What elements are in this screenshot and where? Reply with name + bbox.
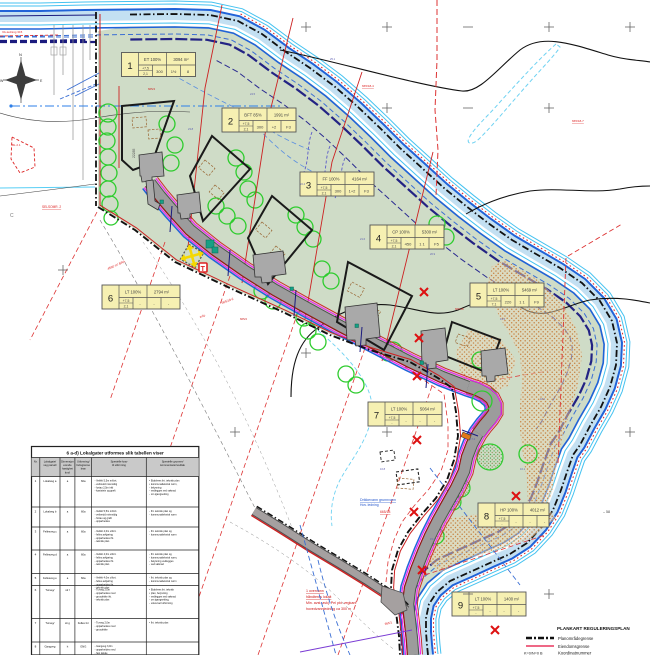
svg-text:4164 m²: 4164 m² xyxy=(352,177,368,182)
svg-text:23.8: 23.8 xyxy=(188,127,194,131)
svg-text:17.4: 17.4 xyxy=(470,437,476,441)
svg-text:erende: erende xyxy=(63,463,72,467)
svg-text:Gangveg: Gangveg xyxy=(44,645,55,649)
svg-text:3094 m²: 3094 m² xyxy=(173,57,189,62)
svg-text:2,1: 2,1 xyxy=(244,128,249,132)
svg-text:1+2: 1+2 xyxy=(349,189,357,194)
svg-text:24.5: 24.5 xyxy=(250,92,256,96)
svg-text:+7,5: +7,5 xyxy=(243,122,250,126)
svg-text:C: C xyxy=(10,213,14,219)
svg-text:PLANKART REGULERINGSPLAN: PLANKART REGULERINGSPLAN xyxy=(557,626,630,631)
svg-text:5: 5 xyxy=(476,292,481,303)
svg-text:VA-ledning 315: VA-ledning 315 xyxy=(2,30,23,34)
svg-text:- ved søknad: - ved søknad xyxy=(149,563,164,566)
svg-text:- teknisk plan: - teknisk plan xyxy=(95,563,110,566)
svg-text:15.2: 15.2 xyxy=(430,537,436,541)
svg-text:-: - xyxy=(391,422,392,426)
svg-text:16.1: 16.1 xyxy=(520,467,526,471)
svg-text:20.9: 20.9 xyxy=(430,252,436,256)
svg-text:300: 300 xyxy=(257,125,264,130)
svg-text:LT 100%: LT 100% xyxy=(391,407,408,412)
svg-text:1 1: 1 1 xyxy=(519,300,525,305)
svg-text:Turveg/: Turveg/ xyxy=(45,621,54,625)
svg-text:hovedvannledning ca 300 m: hovedvannledning ca 300 m xyxy=(306,607,351,611)
svg-text:- teknisk plan: - teknisk plan xyxy=(95,540,110,543)
svg-text:1 1: 1 1 xyxy=(419,242,425,247)
svg-text:22285: 22285 xyxy=(132,148,136,158)
svg-text:220: 220 xyxy=(505,300,512,305)
svg-text:60a: 60a xyxy=(81,553,86,557)
svg-text:Fellesveg c: Fellesveg c xyxy=(43,530,57,534)
svg-text:LT 100%: LT 100% xyxy=(475,597,492,602)
svg-text:Dimensjon: Dimensjon xyxy=(61,460,74,464)
svg-text:19.5: 19.5 xyxy=(500,317,506,321)
svg-text:– 58: – 58 xyxy=(603,510,610,514)
svg-text:18.2: 18.2 xyxy=(540,397,546,401)
svg-text:1 overvann: 1 overvann xyxy=(306,589,324,593)
svg-text:Spesielle grunner/: Spesielle grunner/ xyxy=(162,460,184,464)
svg-text:665/18: 665/18 xyxy=(455,307,464,311)
svg-text:Felles for: Felles for xyxy=(78,621,89,625)
svg-text:F9: F9 xyxy=(534,300,539,305)
svg-text:665/18-4: 665/18-4 xyxy=(362,84,374,88)
svg-text:+7,5: +7,5 xyxy=(499,517,506,521)
svg-text:665/18: 665/18 xyxy=(380,510,390,514)
svg-text:sti g: sti g xyxy=(65,621,70,625)
svg-text:5064 m²: 5064 m² xyxy=(420,407,436,412)
svg-text:665/18-7: 665/18-7 xyxy=(572,119,584,123)
svg-text:16.8: 16.8 xyxy=(380,467,386,471)
svg-text:5469 m²: 5469 m² xyxy=(522,288,538,293)
svg-text:6: 6 xyxy=(108,294,113,305)
svg-text:F5: F5 xyxy=(434,242,439,247)
svg-text:+7,5: +7,5 xyxy=(473,606,480,610)
svg-text:3: 3 xyxy=(306,181,311,192)
svg-text:Lokalgate/: Lokalgate/ xyxy=(44,460,57,464)
svg-text:- kommunalteknisk norm: - kommunalteknisk norm xyxy=(149,513,176,516)
svg-text:60a: 60a xyxy=(81,479,86,483)
svg-text:450: 450 xyxy=(405,242,412,247)
svg-text:km/t: km/t xyxy=(65,470,70,474)
svg-text:Lokalveg a: Lokalveg a xyxy=(43,479,57,483)
svg-text:BFT 85%: BFT 85% xyxy=(244,113,262,118)
svg-text:2: 2 xyxy=(228,117,233,128)
svg-text:SELSOMR. 2: SELSOMR. 2 xyxy=(42,205,61,209)
svg-text:2,1: 2,1 xyxy=(143,72,148,76)
svg-text:K=0/N=0 B: K=0/N=0 B xyxy=(524,652,543,655)
svg-text:ET 100%: ET 100% xyxy=(144,57,161,62)
svg-text:22.4: 22.4 xyxy=(300,182,306,186)
svg-text:krav: krav xyxy=(81,467,87,471)
svg-text:- opparbeides: - opparbeides xyxy=(95,520,111,523)
svg-text:8: 8 xyxy=(484,512,489,523)
svg-text:F3: F3 xyxy=(286,125,291,130)
svg-text:Eiendomsgrense: Eiendomsgrense xyxy=(558,644,590,649)
svg-text:- kommunalteknisk norm: - kommunalteknisk norm xyxy=(149,580,176,583)
svg-text:GNG: GNG xyxy=(80,645,86,649)
svg-text:300: 300 xyxy=(335,189,342,194)
svg-text:60a: 60a xyxy=(81,576,86,580)
svg-text:Spesielle krav: Spesielle krav xyxy=(111,460,128,464)
svg-text:-: - xyxy=(501,523,502,527)
svg-text:- kommunalteknisk norm: - kommunalteknisk norm xyxy=(149,533,176,536)
svg-text:fartsgrense: fartsgrense xyxy=(77,463,91,467)
svg-text:- grusdekke: - grusdekke xyxy=(95,628,109,631)
svg-text:N: N xyxy=(19,52,22,57)
svg-text:2,1: 2,1 xyxy=(322,192,327,196)
svg-text:Utforming/: Utforming/ xyxy=(77,460,90,464)
svg-text:Lokalveg b: Lokalveg b xyxy=(43,510,57,514)
svg-text:+7,5: +7,5 xyxy=(391,239,398,243)
svg-text:+7,5: +7,5 xyxy=(142,67,149,71)
svg-text:300: 300 xyxy=(156,69,163,74)
svg-text:9: 9 xyxy=(458,601,463,612)
svg-text:-: - xyxy=(475,612,476,616)
svg-text:Fellesveg d: Fellesveg d xyxy=(43,553,57,557)
svg-text:+7,5: +7,5 xyxy=(389,416,396,420)
svg-text:1: 1 xyxy=(127,61,132,72)
svg-text:+7,5: +7,5 xyxy=(491,297,498,301)
svg-text:2,1: 2,1 xyxy=(392,245,397,249)
svg-text:F3: F3 xyxy=(364,189,369,194)
svg-text:hastighet: hastighet xyxy=(62,467,73,471)
svg-text:+2: +2 xyxy=(272,125,277,130)
svg-text:1991 m²: 1991 m² xyxy=(274,113,290,118)
svg-text:Fellesveg e: Fellesveg e xyxy=(43,576,57,580)
svg-text:665/2: 665/2 xyxy=(240,317,247,321)
svg-text:1½: 1½ xyxy=(171,69,177,74)
svg-text:4: 4 xyxy=(376,234,381,245)
svg-text:- kantstein og grøft: - kantstein og grøft xyxy=(95,490,116,493)
svg-text:BL 2.1: BL 2.1 xyxy=(12,143,21,147)
svg-text:6 a-d) Lokalgater utformes sli: 6 a-d) Lokalgater utformes slik tabellen… xyxy=(67,450,164,455)
svg-text:til utforming: til utforming xyxy=(112,463,126,467)
svg-text:HP 100%: HP 100% xyxy=(500,508,518,513)
svg-text:665/4: 665/4 xyxy=(148,87,155,91)
svg-text:25.1: 25.1 xyxy=(330,57,336,61)
svg-text:+7,5: +7,5 xyxy=(321,186,328,190)
svg-text:sti f: sti f xyxy=(65,588,69,592)
svg-text:LT 100%: LT 100% xyxy=(125,290,142,295)
svg-text:CP 100%: CP 100% xyxy=(392,230,410,235)
svg-text:Min. avst. avkj. Pel pkt. vegk: Min. avst. avkj. Pel pkt. vegkant xyxy=(306,601,356,605)
svg-text:FF 100%: FF 100% xyxy=(323,177,340,182)
svg-text:Nr.: Nr. xyxy=(34,460,38,464)
svg-text:7: 7 xyxy=(374,411,379,422)
svg-text:Planområdegrense: Planområdegrense xyxy=(558,636,594,641)
svg-text:- om igangsetting: - om igangsetting xyxy=(149,493,169,496)
svg-text:5300 m²: 5300 m² xyxy=(422,230,438,235)
svg-text:• Iht. teknisk plan: • Iht. teknisk plan xyxy=(149,622,169,625)
svg-text:- fast dekke: - fast dekke xyxy=(95,652,109,655)
svg-text:LT 100%: LT 100% xyxy=(493,288,510,293)
svg-text:1400 m²: 1400 m² xyxy=(504,597,520,602)
svg-text:60a: 60a xyxy=(81,530,86,534)
svg-text:Koordinatnummer: Koordinatnummer xyxy=(558,651,592,655)
svg-text:7,1: 7,1 xyxy=(492,303,497,307)
svg-text:Hov. ledning: Hov. ledning xyxy=(360,503,379,507)
svg-text:60a: 60a xyxy=(81,510,86,514)
svg-text:Turveg/: Turveg/ xyxy=(45,588,54,592)
svg-text:T: T xyxy=(201,266,206,273)
svg-text:Drikkevann grunnvann: Drikkevann grunnvann xyxy=(360,498,396,502)
svg-text:kommentarer/vedtak: kommentarer/vedtak xyxy=(160,463,185,467)
svg-text:veg parsell: veg parsell xyxy=(43,463,56,467)
svg-text:4012 m²: 4012 m² xyxy=(530,508,546,513)
svg-text:2,1: 2,1 xyxy=(124,305,129,309)
svg-text:21.6: 21.6 xyxy=(360,237,366,241)
svg-text:2794 m²: 2794 m² xyxy=(154,290,170,295)
svg-text:- teknisk plan: - teknisk plan xyxy=(95,599,110,602)
svg-text:+7,5: +7,5 xyxy=(123,299,130,303)
svg-text:- universell utforming: - universell utforming xyxy=(149,602,173,605)
